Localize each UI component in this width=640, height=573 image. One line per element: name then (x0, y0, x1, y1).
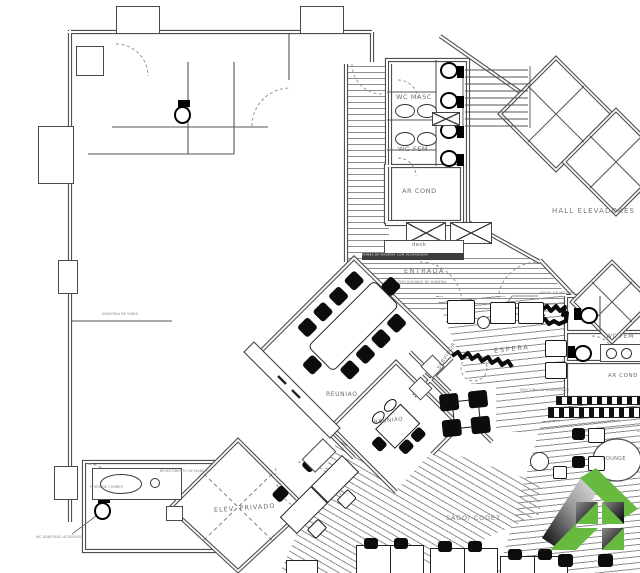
chair (344, 270, 365, 291)
chair (394, 538, 408, 549)
chair (508, 549, 522, 560)
column (58, 260, 78, 294)
armchair (588, 428, 605, 443)
label-wc-fem-left: WC FEM (398, 146, 428, 153)
chair (271, 485, 289, 503)
four-chair-group (439, 390, 493, 440)
chair (442, 419, 463, 438)
toilet (440, 152, 464, 168)
floor-plan: PAINEL DE MADEIRA COM FECHADURAS (0, 0, 640, 573)
chair (328, 286, 349, 307)
label-ar-cond-right: AR COND (608, 373, 638, 379)
chair (438, 541, 452, 552)
column (54, 466, 78, 500)
scale-bar (548, 407, 640, 418)
seat (336, 489, 357, 510)
desk (286, 560, 318, 573)
toilet (568, 344, 592, 360)
toilet (440, 64, 464, 80)
toilet (440, 94, 464, 110)
logo-grid (576, 502, 624, 550)
column (300, 6, 344, 34)
chair (297, 317, 318, 338)
label-hall: HALL ELEVADORES (552, 208, 635, 216)
armchair (490, 302, 516, 324)
column (116, 6, 160, 34)
label-wc-fem-right: WC FEM (606, 334, 634, 341)
painel-strip-text: PAINEL DE MADEIRA COM FECHADURAS (362, 253, 413, 257)
sink (606, 348, 617, 359)
chair (468, 541, 482, 552)
armchair (447, 300, 475, 324)
seat (307, 519, 328, 540)
side-table (477, 316, 490, 329)
label-divisoria: DIVISORIA DE VIDRO (102, 313, 138, 317)
sink (395, 104, 415, 118)
bidet (166, 506, 183, 521)
label-saguao: SAGO/ CODE7 (446, 515, 501, 522)
armchair (518, 302, 544, 324)
column (76, 46, 104, 76)
sink (621, 348, 632, 359)
chair (439, 393, 460, 412)
toilet (176, 100, 192, 124)
toilet (574, 306, 598, 322)
label-wc-masc: WC MASC (396, 94, 432, 101)
armchair (545, 340, 567, 357)
label-entrada-sub: PISO ELEVADO DE MADEIRA (398, 281, 447, 285)
label-painel: PAINEL DE MADEIRA (540, 292, 575, 296)
painel-strip: PAINEL DE MADEIRA COM FECHADURAS (362, 253, 464, 260)
toilet (440, 124, 464, 140)
company-logo (538, 462, 640, 564)
label-note3: PORTA DE CORRER (90, 486, 123, 490)
label-deck: deck (412, 242, 426, 248)
label-reuniao-a: REUNIAO (326, 392, 358, 399)
label-vinilico: PISO VINILICO AMADEIRADO (520, 389, 569, 393)
sink (417, 132, 437, 146)
shaft-box (432, 112, 460, 126)
faucet (150, 478, 160, 488)
label-entrada: ENTRADA (404, 268, 445, 275)
label-note2: REVESTIMENTO DE MADEIRA (160, 470, 210, 474)
desk (356, 545, 424, 573)
column (38, 126, 74, 184)
label-ar-cond-left: AR COND (402, 188, 437, 195)
basin (100, 474, 142, 494)
armchair (545, 362, 567, 379)
chair (572, 428, 585, 440)
chair (470, 416, 491, 435)
label-note1: WC ADAPTADO ACESSIVEL (36, 536, 82, 540)
chair (312, 301, 333, 322)
chair (364, 538, 378, 549)
sink (395, 132, 415, 146)
chair (468, 390, 489, 409)
scale-bar (556, 396, 640, 405)
